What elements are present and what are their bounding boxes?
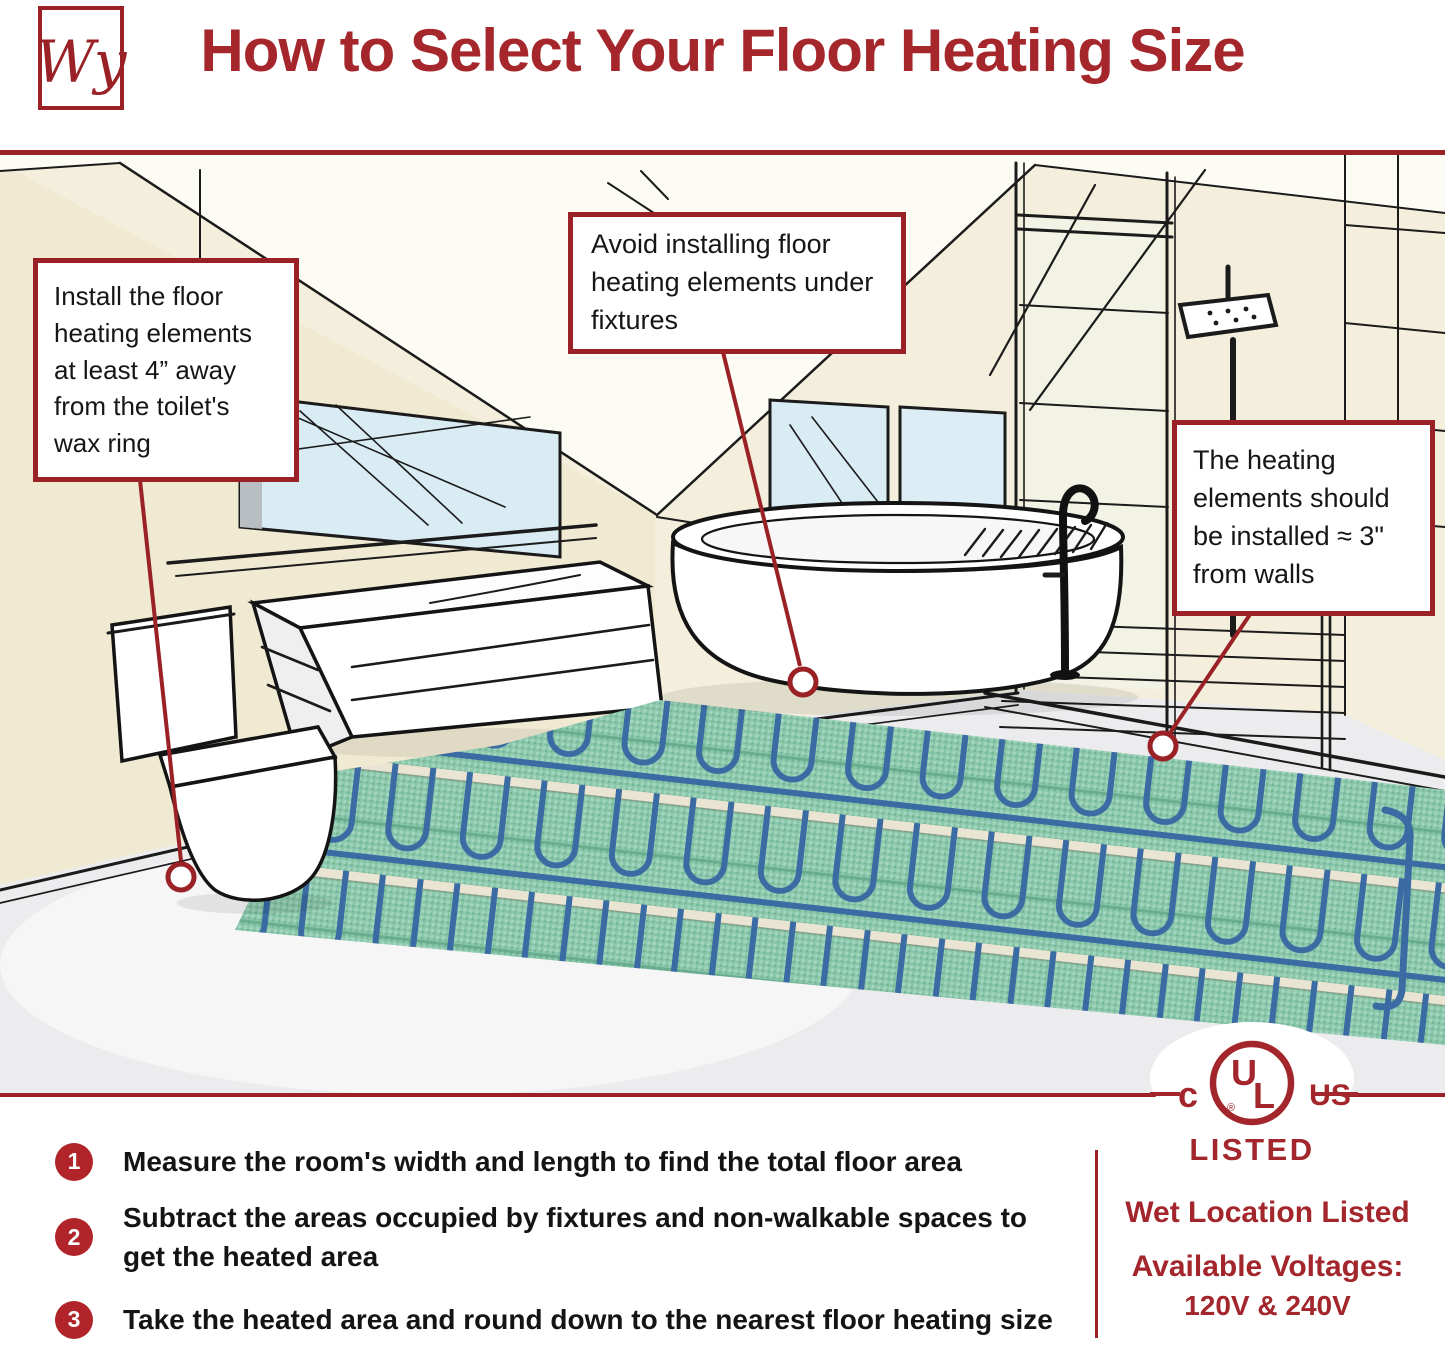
step-1-number-badge: 1 (55, 1143, 93, 1181)
callout-walls-text: The heating elements should be installed… (1193, 442, 1414, 593)
callout-box-fixtures: Avoid installing floor heating elements … (568, 212, 906, 354)
ul-listed-badge: U L ® c US LISTED (1118, 1012, 1388, 1202)
step-2-number-badge: 2 (55, 1218, 93, 1256)
wet-location-label: Wet Location Listed (1100, 1196, 1435, 1230)
ul-c-mark: c (1178, 1074, 1198, 1115)
step-row-1: 1 Measure the room's width and length to… (55, 1142, 1065, 1181)
callout-box-walls: The heating elements should be installed… (1172, 420, 1435, 616)
step-1-text: Measure the room's width and length to f… (123, 1142, 962, 1181)
callout-toilet-text: Install the floor heating elements at le… (54, 278, 280, 463)
callout-box-toilet: Install the floor heating elements at le… (33, 258, 299, 482)
callout-fixtures-text: Avoid installing floor heating elements … (591, 226, 883, 339)
voltages-value: 120V & 240V (1100, 1290, 1435, 1322)
ul-registered-mark: ® (1227, 1102, 1235, 1114)
step-3-number-badge: 3 (55, 1301, 93, 1339)
step-row-3: 3 Take the heated area and round down to… (55, 1300, 1065, 1339)
leader-toilet-marker (168, 864, 194, 890)
ul-l-letter: L (1253, 1075, 1275, 1116)
leader-walls-marker (1150, 733, 1176, 759)
infographic-page: Wy How to Select Your Floor Heating Size (0, 0, 1445, 1348)
page-title: How to Select Your Floor Heating Size (0, 16, 1445, 85)
step-2-text: Subtract the areas occupied by fixtures … (123, 1198, 1063, 1276)
ul-listed-label: LISTED (1189, 1132, 1314, 1167)
ul-us-mark: US (1309, 1079, 1351, 1112)
step-3-text: Take the heated area and round down to t… (123, 1300, 1053, 1339)
voltages-label: Available Voltages: (1100, 1250, 1435, 1284)
footer-divider (1095, 1150, 1098, 1338)
leader-fixtures-marker (790, 669, 816, 695)
step-row-2: 2 Subtract the areas occupied by fixture… (55, 1198, 1065, 1276)
